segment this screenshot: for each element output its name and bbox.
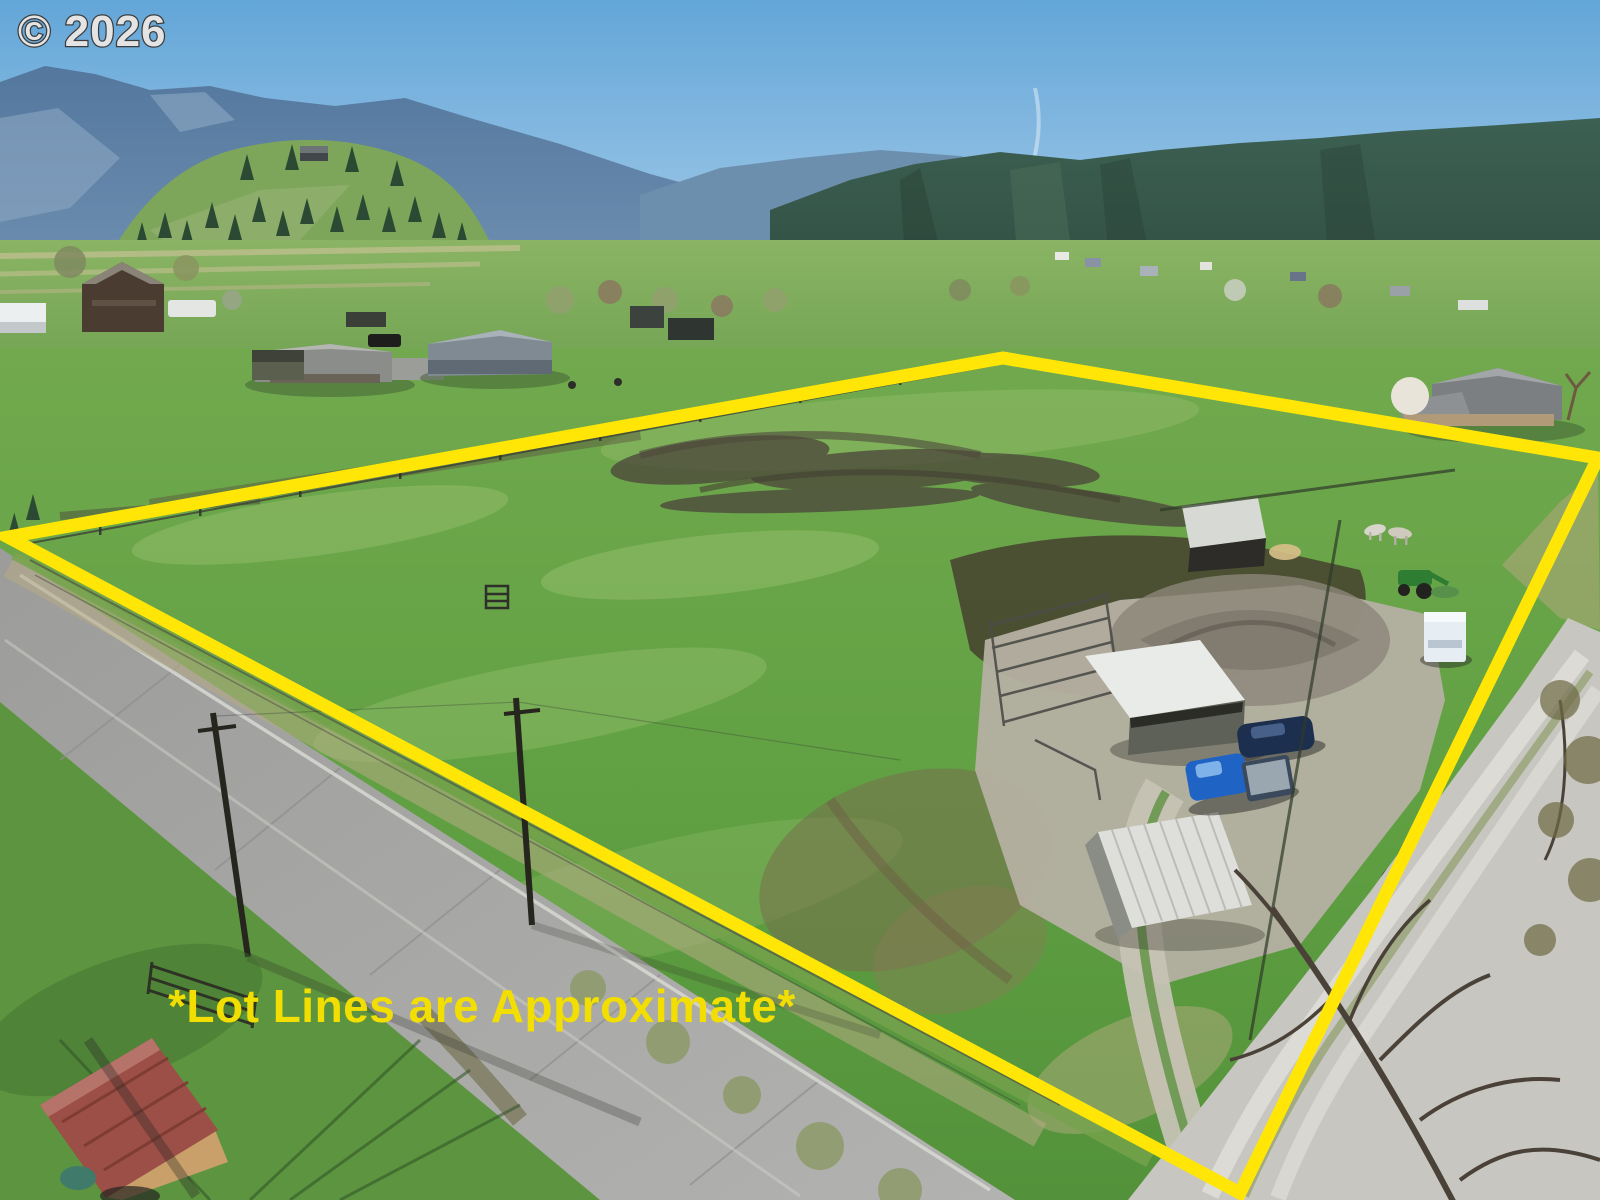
horse-trailer xyxy=(1420,612,1472,668)
lot-lines-disclaimer: *Lot Lines are Approximate* xyxy=(168,980,796,1032)
camper-trailer xyxy=(168,300,216,317)
dark-structure-a xyxy=(630,306,664,328)
olive-shed xyxy=(252,350,304,380)
white-house-left xyxy=(0,303,46,333)
small-dark-shed xyxy=(346,312,386,327)
copyright-watermark: © 2026 xyxy=(18,7,167,56)
dark-pickup-background xyxy=(368,334,401,347)
flowering-tree xyxy=(1391,377,1429,415)
teal-equipment xyxy=(60,1166,96,1190)
dark-structure-b xyxy=(668,318,714,340)
hilltop-house xyxy=(300,146,328,161)
aerial-photo: © 2026 *Lot Lines are Approximate* xyxy=(0,0,1600,1200)
